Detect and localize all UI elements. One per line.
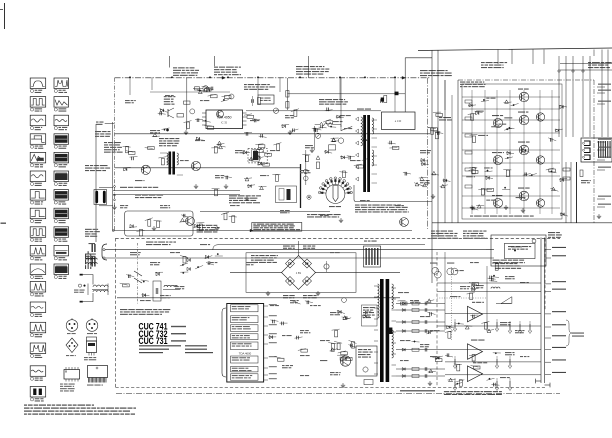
svg-text:a 130: a 130 [395, 119, 402, 123]
svg-text:TDA 4600: TDA 4600 [239, 352, 252, 356]
svg-text:CUC 731: CUC 731 [139, 336, 168, 346]
svg-text:4 BS: 4 BS [296, 272, 302, 275]
svg-text:IC 35: IC 35 [221, 121, 228, 125]
